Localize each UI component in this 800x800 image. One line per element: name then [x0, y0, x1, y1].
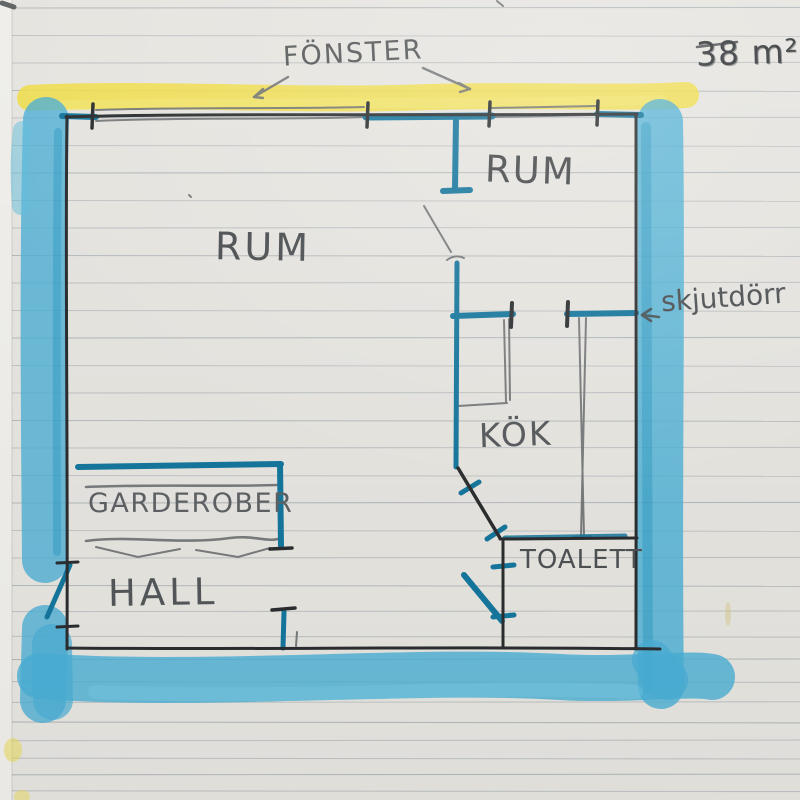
- marker-right-wall: [660, 122, 661, 686]
- marker-corner-bottom-left: [52, 644, 53, 700]
- ruled-line: [12, 62, 800, 63]
- pencil-dot: [189, 195, 191, 197]
- ruled-line: [12, 791, 800, 792]
- marker-left-wall-upper: [44, 120, 46, 560]
- ruled-line: [12, 722, 800, 723]
- wardrobe-foot-tick: [270, 548, 292, 549]
- wall-left: [66, 116, 67, 649]
- window-1-tick-right: [367, 103, 368, 127]
- marker-bottom-pass2: [95, 690, 636, 695]
- wall-right: [636, 114, 637, 649]
- inner-wall-vertical: [456, 263, 457, 467]
- entrance-tick-top: [57, 562, 78, 563]
- ruled-line: [12, 774, 800, 775]
- inner-wall-horiz-right: [567, 313, 636, 314]
- wardrobe-top-edge: [78, 464, 281, 467]
- yellow-highlight-pass2: [46, 100, 662, 106]
- stub-wall-top: [455, 118, 456, 189]
- wardrobe-door-mark-left: [96, 547, 180, 557]
- marker-right-wall-core: [646, 127, 648, 688]
- kitchen-counter-b: [509, 319, 510, 400]
- window-1-tick-left: [92, 104, 93, 128]
- entrance-tick-bottom: [57, 626, 78, 627]
- area-overline: [697, 42, 737, 47]
- yellow-stain-1: [4, 738, 22, 762]
- yellow-stain-2: [14, 790, 30, 800]
- wall-bottom: [67, 648, 660, 649]
- blue-pen-layer: [47, 114, 641, 648]
- kitchen-counter-c: [458, 403, 507, 406]
- marker-left-wall-core: [57, 132, 58, 552]
- wardrobe-front-line: [86, 485, 277, 487]
- ruled-line: [12, 740, 800, 741]
- stub-wall-foot: [443, 190, 470, 191]
- pencil-tick-bottom-wall: [296, 632, 297, 646]
- marker-bottom-wall: [40, 675, 712, 680]
- black-pen-layer: [57, 101, 660, 649]
- ruled-line: [12, 36, 800, 37]
- kitchen-counter-a: [504, 320, 506, 402]
- bottom-wall-stub: [283, 612, 284, 648]
- marker-layer: [20, 95, 712, 700]
- yellow-stain-3: [725, 602, 731, 626]
- room2-door-swing: [424, 206, 451, 252]
- bottom-stub-tick: [272, 608, 295, 610]
- toilet-top-wall: [500, 538, 637, 539]
- ruled-line: [12, 758, 800, 759]
- marker-corner-bottom-right: [652, 660, 668, 680]
- room2-door-arc: [447, 256, 464, 260]
- window-2-tick-left: [489, 102, 490, 126]
- wardrobe-door-mark-right: [196, 548, 270, 557]
- wardrobe-bottom-line: [86, 537, 278, 541]
- slider-tick-right: [567, 302, 568, 326]
- notebook-page: FÖNSTER 38 m² RUM RUM skjutdörr KÖK GARD…: [0, 0, 800, 800]
- top-edge-mark: [497, 1, 503, 6]
- page-edge: [0, 0, 12, 800]
- floorplan-sketch: [0, 0, 800, 800]
- marker-left-wall-outer: [20, 130, 22, 206]
- inner-wall-horiz-left: [453, 314, 513, 316]
- toilet-door-leaf: [464, 575, 502, 621]
- slider-tick-left: [511, 303, 512, 327]
- wardrobe-right-edge: [280, 464, 281, 546]
- ruled-line: [12, 7, 800, 8]
- window-2-tick-right: [597, 101, 598, 125]
